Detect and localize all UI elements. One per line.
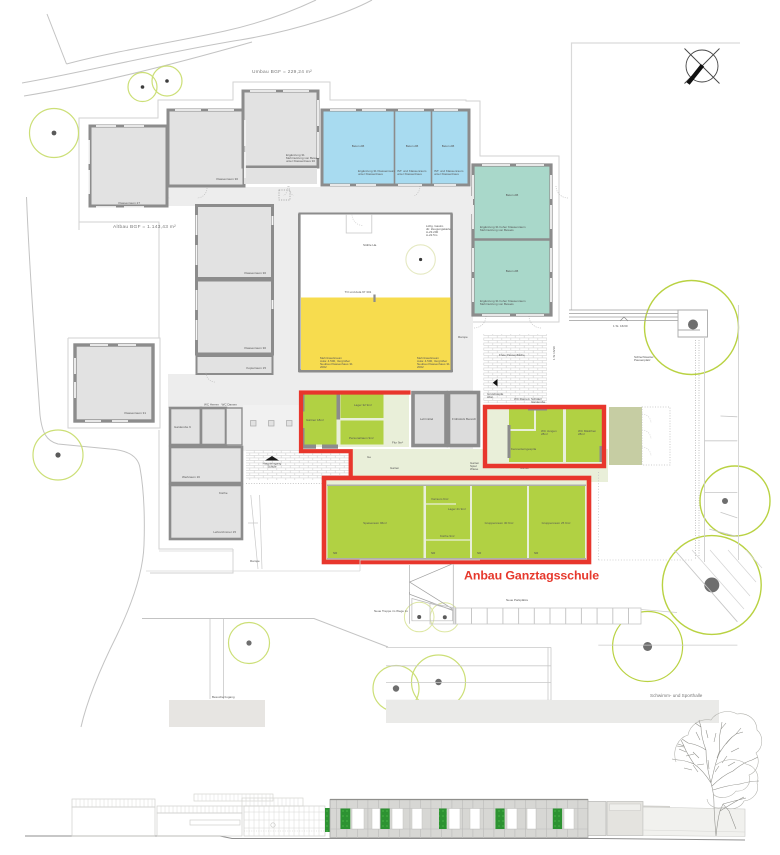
- svg-text:Gärtner 18m²: Gärtner 18m²: [306, 418, 324, 422]
- svg-text:Freie Pausenfläche: Freie Pausenfläche: [499, 353, 525, 357]
- svg-text:Lager 21 9m²: Lager 21 9m²: [448, 507, 466, 511]
- svg-text:Gruppenraum 25 9m²: Gruppenraum 25 9m²: [542, 521, 571, 525]
- svg-text:Klassenraum 30: Klassenraum 30: [216, 177, 238, 181]
- svg-text:Neue Parkplätze: Neue Parkplätze: [506, 598, 529, 602]
- svg-text:unter Klassenhaus: unter Klassenhaus: [434, 172, 459, 176]
- svg-text:unter Klassenhaus: unter Klassenhaus: [358, 172, 383, 176]
- svg-text:WC Damen: WC Damen: [222, 403, 238, 407]
- svg-text:Speiseraum 96m²: Speiseraum 96m²: [363, 521, 387, 525]
- svg-text:Klassenraum 30: Klassenraum 30: [244, 346, 266, 350]
- svg-text:Wiese: Wiese: [470, 467, 479, 471]
- svg-text:Beton AB: Beton AB: [352, 144, 365, 148]
- svg-text:2002: 2002: [320, 365, 327, 369]
- svg-text:28m²: 28m²: [541, 432, 548, 436]
- svg-text:unter Klassenhaus 30: unter Klassenhaus 30: [286, 159, 315, 163]
- svg-text:Kopierraum 15: Kopierraum 15: [246, 366, 266, 370]
- svg-text:WC Damen: WC Damen: [514, 397, 530, 401]
- svg-text:28m²: 28m²: [578, 432, 585, 436]
- svg-text:TO und Aula 97 301: TO und Aula 97 301: [345, 290, 372, 294]
- svg-text:Pausenplatz: Pausenplatz: [634, 358, 651, 362]
- svg-text:Lehrerzimmer 15: Lehrerzimmer 15: [213, 530, 236, 534]
- svg-text:Altbau BGF = 1.143,43 m²: Altbau BGF = 1.143,43 m²: [113, 224, 176, 230]
- svg-text:Flur 9m²: Flur 9m²: [392, 441, 403, 445]
- svg-text:Frühstück Bereich: Frühstück Bereich: [452, 417, 477, 421]
- svg-text:Besucherzugang: Besucherzugang: [212, 695, 235, 699]
- svg-text:Anbau Ganztagsschule: Anbau Ganztagsschule: [464, 569, 599, 583]
- svg-text:Mehrnutzung von Beweis: Mehrnutzung von Beweis: [480, 228, 514, 232]
- svg-text:Stühle Ha.: Stühle Ha.: [363, 243, 377, 247]
- svg-text:Rampe: Rampe: [458, 335, 468, 339]
- svg-text:1 St. 16/30: 1 St. 16/30: [613, 324, 628, 328]
- svg-text:Klassenraum 30: Klassenraum 30: [244, 271, 266, 275]
- svg-text:Personalraum 9m²: Personalraum 9m²: [349, 436, 374, 440]
- svg-text:Abst.: Abst.: [487, 395, 494, 399]
- svg-text:2002: 2002: [417, 365, 424, 369]
- svg-text:Mehrnutzung von Beweis: Mehrnutzung von Beweis: [480, 302, 514, 306]
- svg-text:Küche 9m²: Küche 9m²: [440, 534, 455, 538]
- svg-text:Ge: Ge: [367, 455, 371, 459]
- svg-text:Lager 32 9m²: Lager 32 9m²: [354, 403, 372, 407]
- svg-text:Schwimm- und Sporthalle: Schwimm- und Sporthalle: [650, 693, 703, 698]
- svg-text:Garderobe: Garderobe: [531, 400, 546, 404]
- svg-text:Beton AB: Beton AB: [442, 144, 455, 148]
- svg-text:Beton AB: Beton AB: [406, 144, 419, 148]
- svg-text:Vorraum 9m²: Vorraum 9m²: [431, 497, 448, 501]
- svg-text:Garten: Garten: [390, 466, 400, 470]
- svg-text:Neue Treppe im Wege zu: Neue Treppe im Wege zu: [374, 609, 408, 613]
- svg-text:Werkraum 16: Werkraum 16: [182, 475, 200, 479]
- svg-text:unter Klassenhaus: unter Klassenhaus: [397, 172, 422, 176]
- svg-text:Klassenraum 31: Klassenraum 31: [124, 411, 146, 415]
- svg-text:Garderobe 9: Garderobe 9: [174, 425, 191, 429]
- svg-text:A-22.5m: A-22.5m: [426, 233, 438, 237]
- svg-text:1 St 16/30: 1 St 16/30: [552, 346, 556, 360]
- svg-text:Beton AB: Beton AB: [506, 193, 519, 197]
- svg-text:Gruppenraum 30 9m²: Gruppenraum 30 9m²: [485, 521, 514, 525]
- svg-text:Küche: Küche: [219, 491, 228, 495]
- svg-text:Lehrmittel: Lehrmittel: [420, 417, 434, 421]
- svg-text:Rampe: Rampe: [250, 559, 260, 563]
- svg-text:WC Herren: WC Herren: [204, 403, 219, 407]
- svg-text:Klassenraum 27: Klassenraum 27: [118, 201, 140, 205]
- svg-text:Beton AB: Beton AB: [506, 269, 519, 273]
- svg-text:Schule: Schule: [267, 465, 277, 469]
- svg-text:Umbau BGF = 229,24 m²: Umbau BGF = 229,24 m²: [252, 69, 312, 75]
